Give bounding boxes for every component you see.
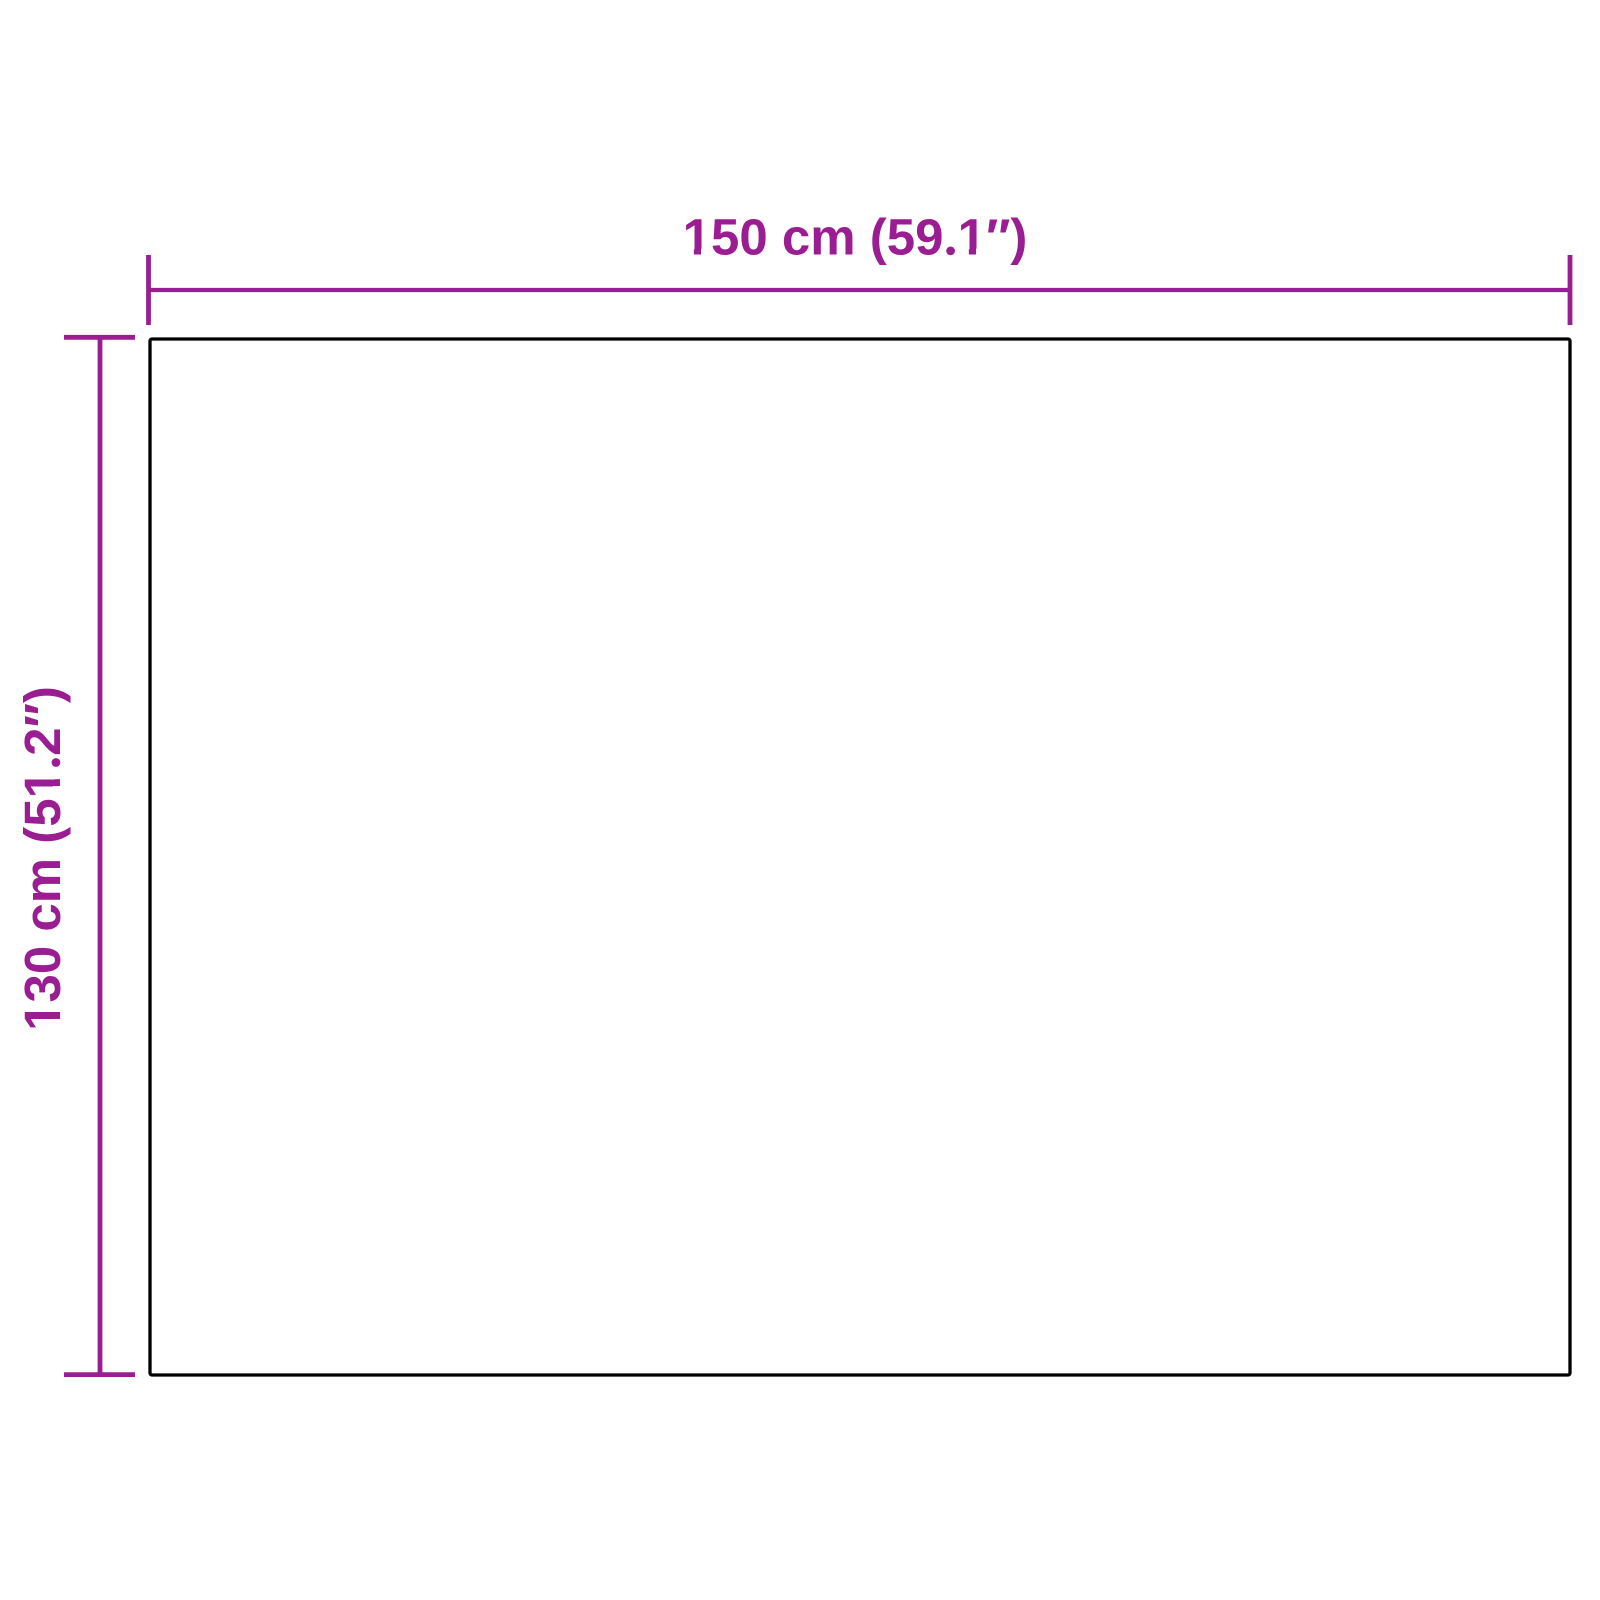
svg-text:130 cm (51.2″): 130 cm (51.2″) bbox=[14, 686, 71, 1031]
svg-text:150 cm (59.1″): 150 cm (59.1″) bbox=[683, 209, 1028, 266]
